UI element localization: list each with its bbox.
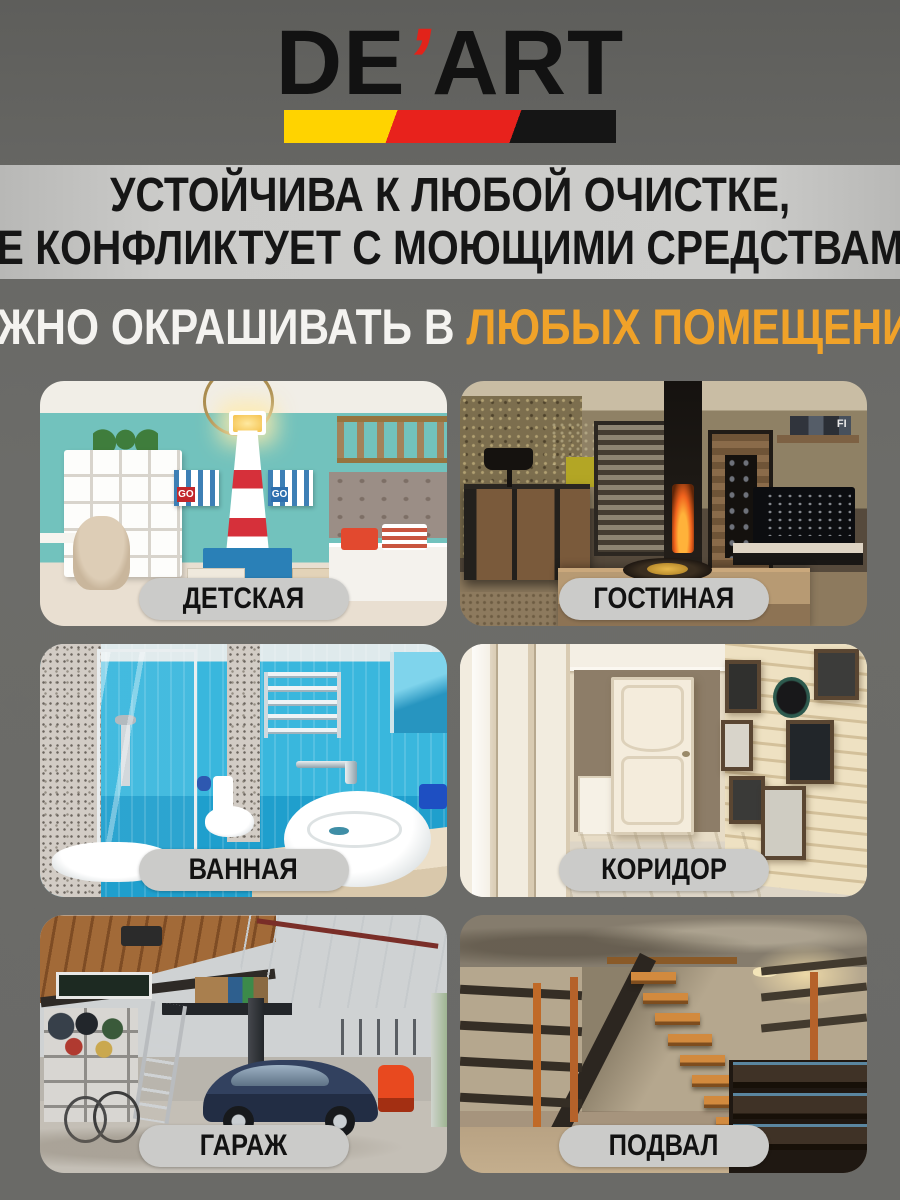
garage-opener [121,926,162,947]
wall-shelf [777,435,858,442]
lamp-stem [507,470,512,487]
claim-line-1: УСТОЙЧИВА К ЛЮБОЙ ОЧИСТКЕ, [110,169,790,223]
stair-tread [631,972,676,984]
shelf-board [460,984,582,999]
rooms-grid: GO GO ДЕТСКАЯ FI [40,381,867,1173]
photo-basement: ПОДВАЛ [460,915,867,1173]
hall-cabinet [578,776,615,836]
table-lamp [484,448,533,470]
photo-garage: ГАРАЖ [40,915,447,1173]
topiary-trees [93,421,158,453]
chair [73,516,130,590]
blue-accessory [197,776,211,791]
brand-header: DE’ART [0,0,900,143]
picture-frame [786,720,835,784]
mirror-reflection [472,644,496,897]
brand-logo: DE’ART [276,26,624,101]
picture-frame [761,786,806,860]
toilet [205,806,254,836]
go-flag: GO [271,487,289,502]
stair-tread [643,993,688,1005]
mirror [390,652,447,733]
door-panel-top [621,685,684,752]
shelf-board [460,1093,582,1108]
drawer [733,1065,867,1088]
round-frame [773,677,810,717]
shelf-board [460,1021,582,1036]
stair-header-beam [607,957,737,965]
wall-box-right: GO [268,470,313,507]
open-garage-door [431,993,447,1127]
towel-ladder-rail [264,672,341,738]
wall-faucet-spout [345,761,357,784]
claim-banner: УСТОЙЧИВА К ЛЮБОЙ ОЧИСТКЕ, НЕ КОНФЛИКТУЕ… [0,165,900,279]
section-title-white: МОЖНО ОКРАШИВАТЬ В [0,299,466,355]
sink-rim [307,811,403,847]
clerestory-window [56,972,152,999]
drawer [733,1096,867,1119]
bunk-rail [337,416,447,464]
brand-logo-right: ART [432,26,624,101]
orange-post [570,977,578,1121]
picture-frame [725,660,761,714]
wall-box-left: GO [174,470,219,507]
red-pillow [341,528,378,550]
red-equipment [378,1065,415,1111]
brand-stripe-yellow-red-black [284,110,616,143]
picture-frame [814,649,859,700]
photo-corridor: КОРИДОР [460,644,867,897]
go-flag: GO [177,487,195,502]
stair-tread [668,1034,713,1046]
decor-bowl-center [647,563,688,575]
stair-tread [655,1013,700,1025]
door-knob [682,751,690,757]
shelf-clutter [48,1011,133,1063]
section-title-orange: ЛЮБЫХ ПОМЕЩЕНИЯХ [466,299,900,355]
sideboard [464,484,590,580]
room-label-bath: ВАННАЯ [139,849,349,891]
picture-frame [721,720,753,771]
claim-line-2: НЕ КОНФЛИКТУЕТ С МОЮЩИМИ СРЕДСТВАМИ [0,222,900,276]
ladder [133,1001,188,1124]
stair-tread [680,1055,725,1067]
striped-pillow [382,524,427,551]
room-label-kids: ДЕТСКАЯ [139,578,349,620]
wall-tools [341,1019,431,1055]
brand-logo-left: DE [276,26,406,101]
room-label-garage: ГАРАЖ [139,1125,349,1167]
blue-towel [419,784,447,809]
section-title: МОЖНО ОКРАШИВАТЬ В ЛЮБЫХ ПОМЕЩЕНИЯХ [0,299,900,355]
fireplace-fire [672,484,694,553]
shower-glass [97,649,197,873]
room-label-living: ГОСТИНАЯ [559,578,769,620]
lighthouse [225,430,270,562]
photo-bathroom: ВАННАЯ [40,644,447,897]
photo-kids-room: GO GO ДЕТСКАЯ [40,381,447,626]
photo-living-room: FI ГОСТИНАЯ [460,381,867,626]
shelf-board [460,1057,582,1072]
door-panel-bottom [621,756,684,825]
picture-frame [729,776,765,824]
tv-screen [765,492,850,536]
media-bench [733,543,863,565]
lighthouse-light [233,415,261,432]
shelf-letters: FI [837,418,847,430]
room-label-basement: ПОДВАЛ [559,1125,769,1167]
room-label-corridor: КОРИДОР [559,849,769,891]
orange-post [533,983,541,1143]
